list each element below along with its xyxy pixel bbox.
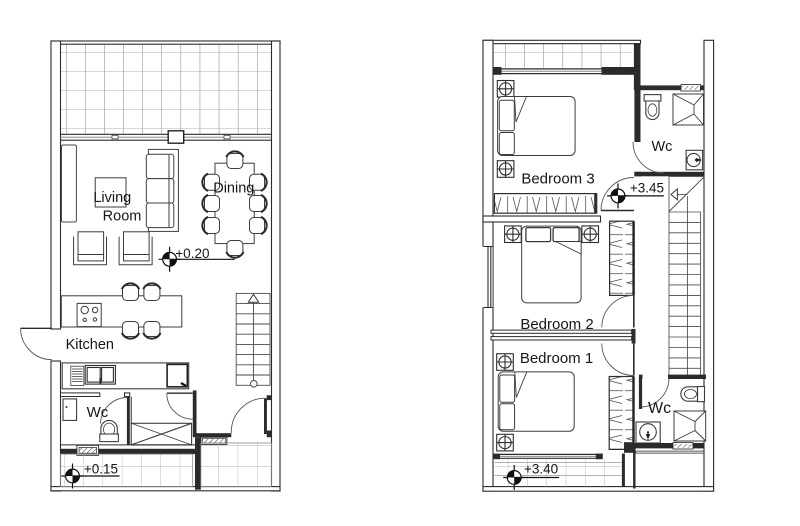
svg-text:+3.45: +3.45	[630, 180, 664, 195]
svg-text:Wc: Wc	[652, 139, 673, 155]
svg-text:Living: Living	[93, 190, 131, 206]
svg-text:Dining: Dining	[213, 180, 254, 196]
svg-text:+0.15: +0.15	[84, 461, 118, 476]
svg-text:Bedroom 3: Bedroom 3	[521, 171, 594, 188]
svg-text:Wc: Wc	[648, 400, 671, 417]
svg-text:+0.20: +0.20	[175, 246, 209, 261]
svg-text:Kitchen: Kitchen	[66, 337, 114, 353]
svg-text:Wc: Wc	[87, 404, 109, 421]
svg-text:Bedroom 1: Bedroom 1	[520, 350, 593, 367]
svg-text:Room: Room	[103, 209, 142, 225]
svg-text:+3.40: +3.40	[524, 462, 558, 477]
